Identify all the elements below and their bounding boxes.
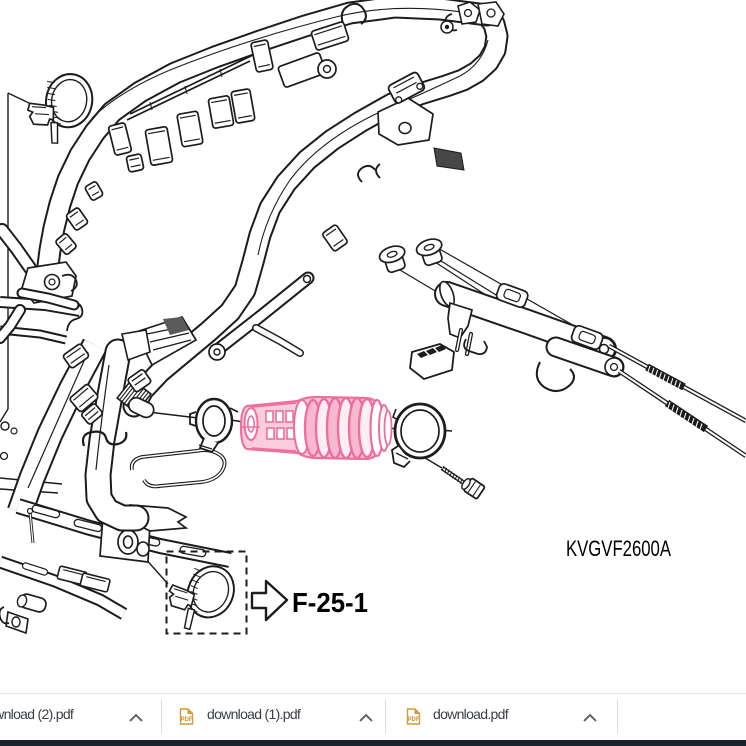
svg-text:F-25-1: F-25-1 (292, 587, 368, 618)
svg-text:PDF: PDF (181, 717, 193, 723)
svg-text:PDF: PDF (408, 717, 420, 723)
svg-text:KVGVF2600A: KVGVF2600A (566, 536, 671, 561)
